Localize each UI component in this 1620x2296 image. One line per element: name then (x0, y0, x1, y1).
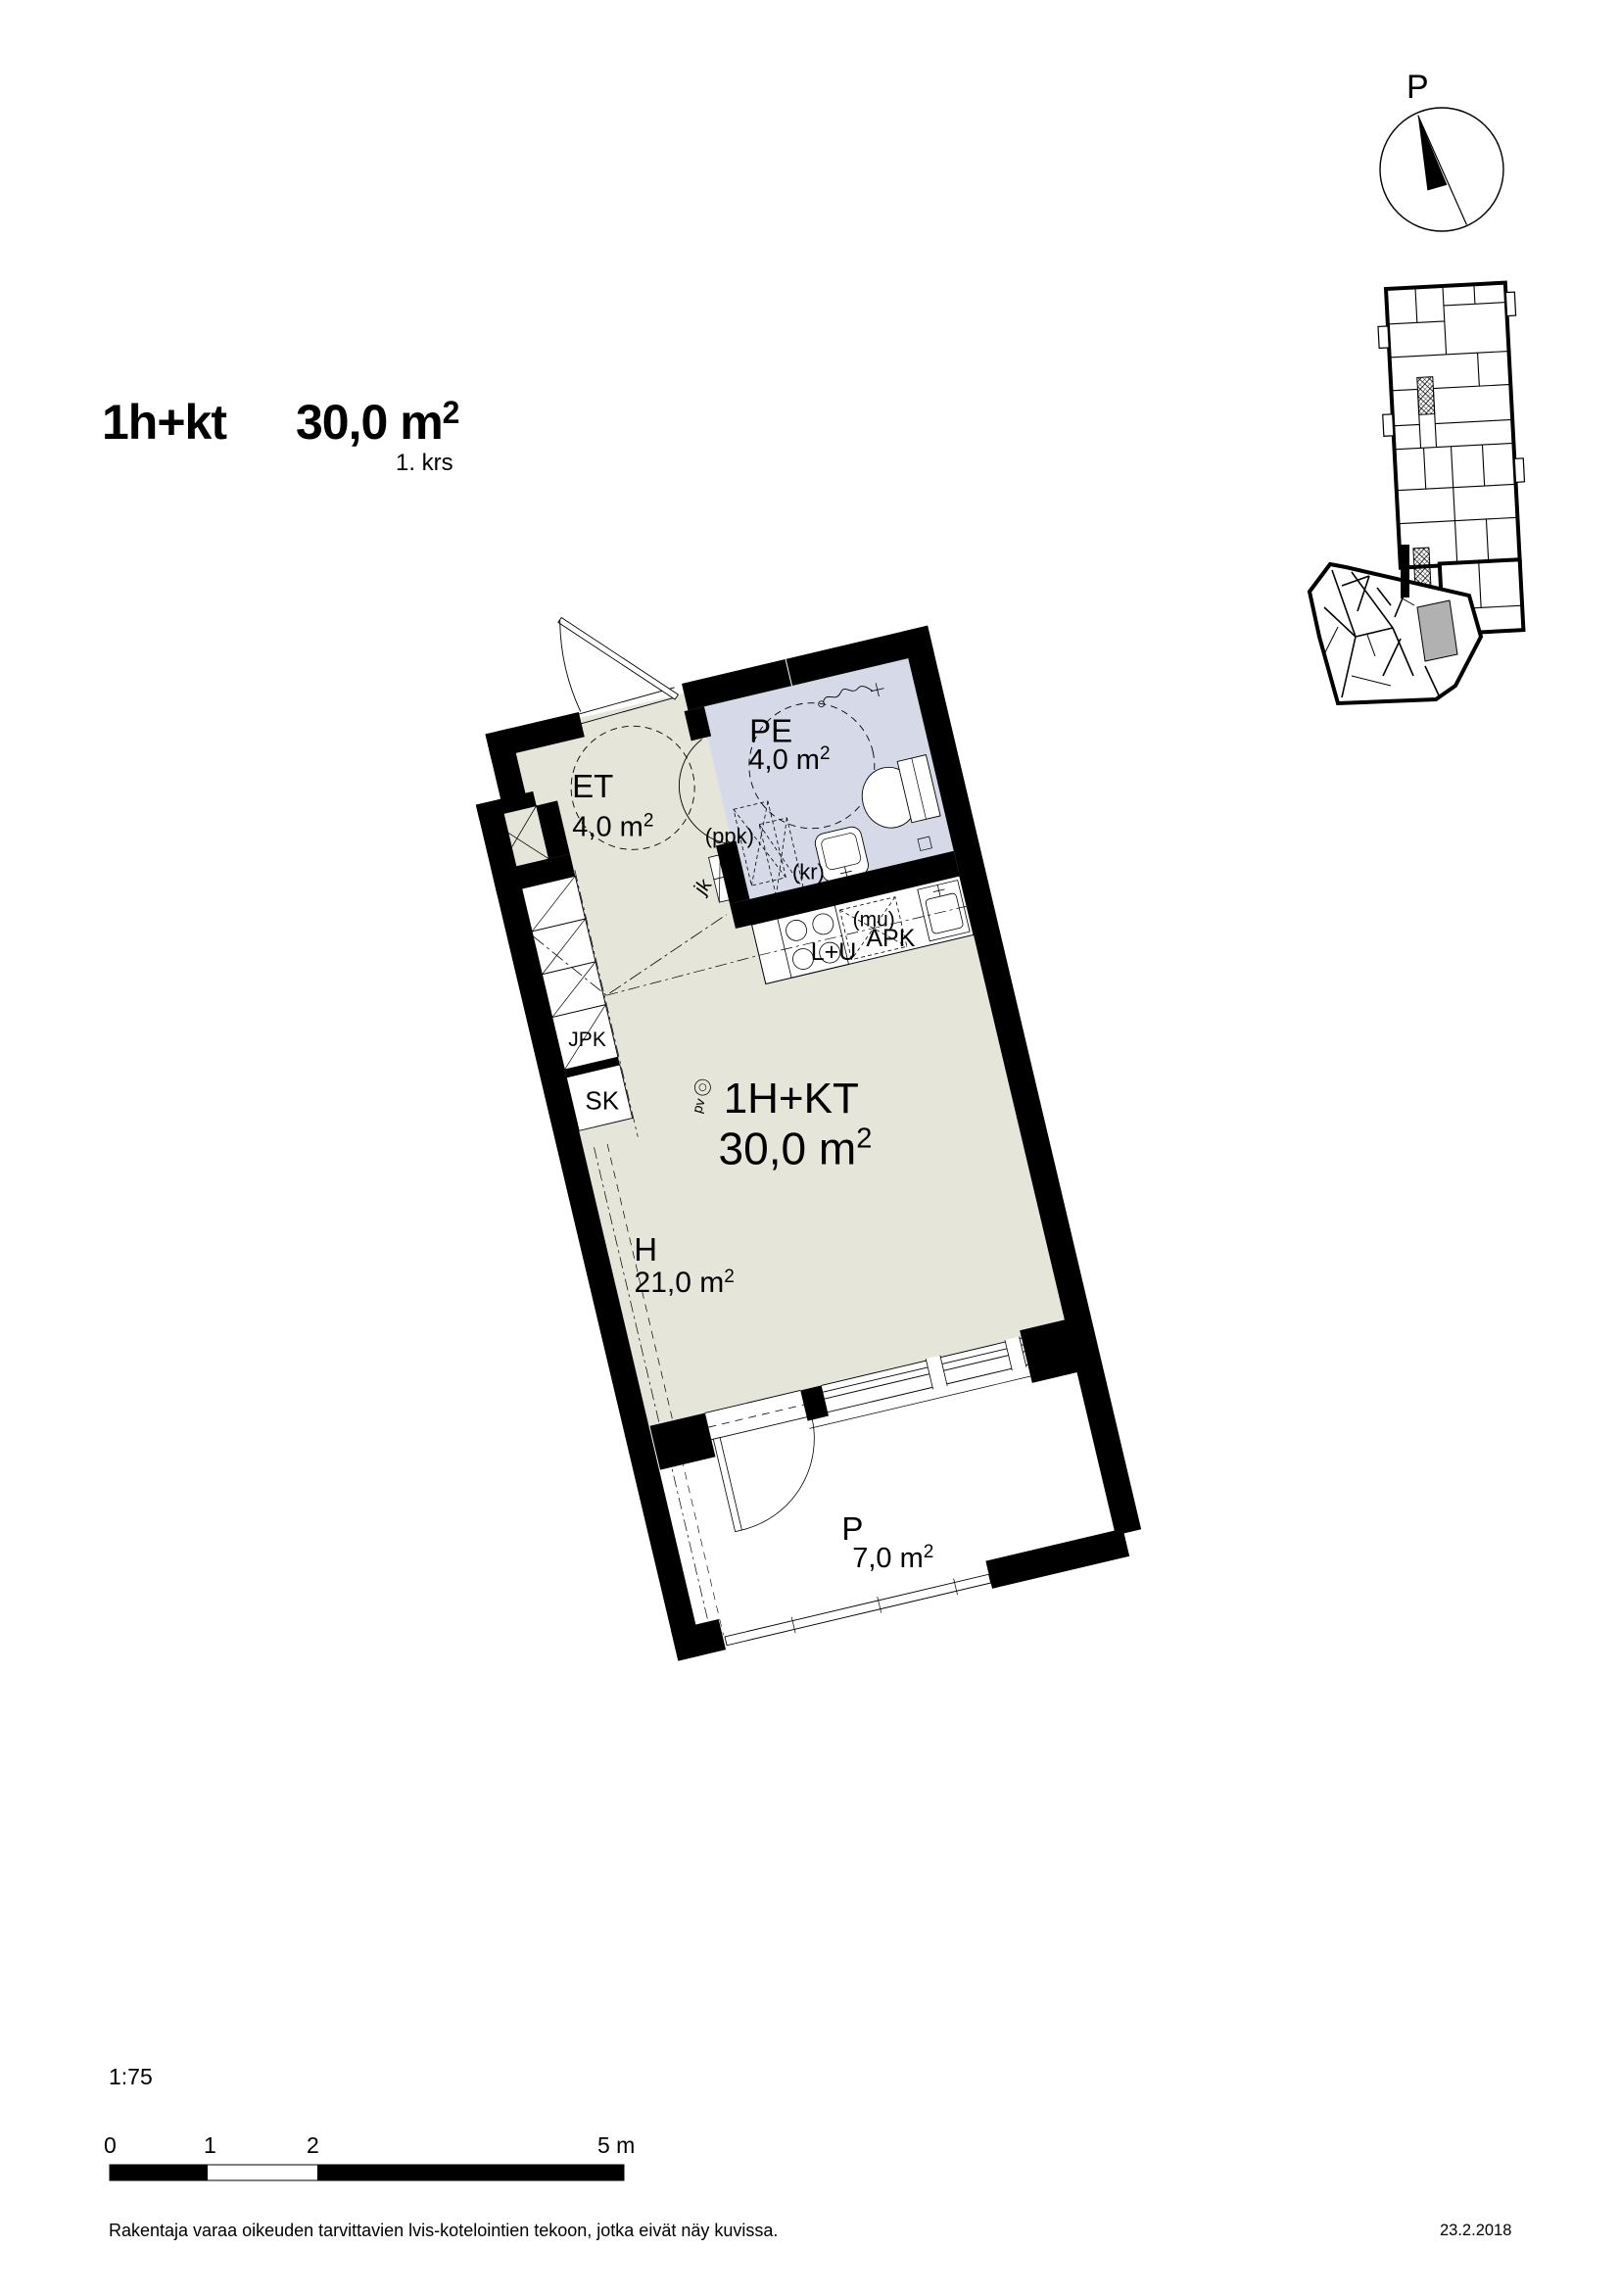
svg-text:1h+kt: 1h+kt (102, 395, 227, 450)
svg-text:7,0 m2: 7,0 m2 (852, 1542, 933, 1574)
svg-text:ET: ET (572, 768, 613, 804)
svg-text:L+U: L+U (811, 938, 857, 966)
svg-text:4,0 m2: 4,0 m2 (572, 810, 653, 842)
svg-text:P: P (1406, 69, 1429, 106)
svg-text:21,0 m2: 21,0 m2 (635, 1267, 735, 1299)
svg-text:30,0 m2: 30,0 m2 (296, 395, 459, 450)
svg-text:1:75: 1:75 (109, 2064, 153, 2089)
svg-text:APK: APK (866, 925, 915, 952)
svg-text:P: P (841, 1510, 863, 1547)
svg-text:30,0 m2: 30,0 m2 (719, 1123, 873, 1173)
svg-text:(ppk): (ppk) (705, 824, 754, 848)
svg-text:1H+KT: 1H+KT (724, 1075, 859, 1123)
svg-text:SK: SK (585, 1085, 619, 1115)
svg-text:4,0 m2: 4,0 m2 (748, 743, 830, 776)
svg-text:Rakentaja varaa oikeuden tarvi: Rakentaja varaa oikeuden tarvittavien lv… (109, 2221, 778, 2240)
svg-text:(kr): (kr) (792, 860, 825, 885)
svg-text:0: 0 (104, 2132, 117, 2158)
svg-text:23.2.2018: 23.2.2018 (1440, 2222, 1511, 2239)
svg-text:H: H (634, 1231, 657, 1268)
svg-text:JPK: JPK (568, 1028, 606, 1051)
svg-text:1. krs: 1. krs (396, 450, 453, 476)
svg-text:1: 1 (204, 2132, 216, 2158)
svg-text:2: 2 (307, 2132, 319, 2158)
svg-text:5 m: 5 m (597, 2132, 635, 2158)
